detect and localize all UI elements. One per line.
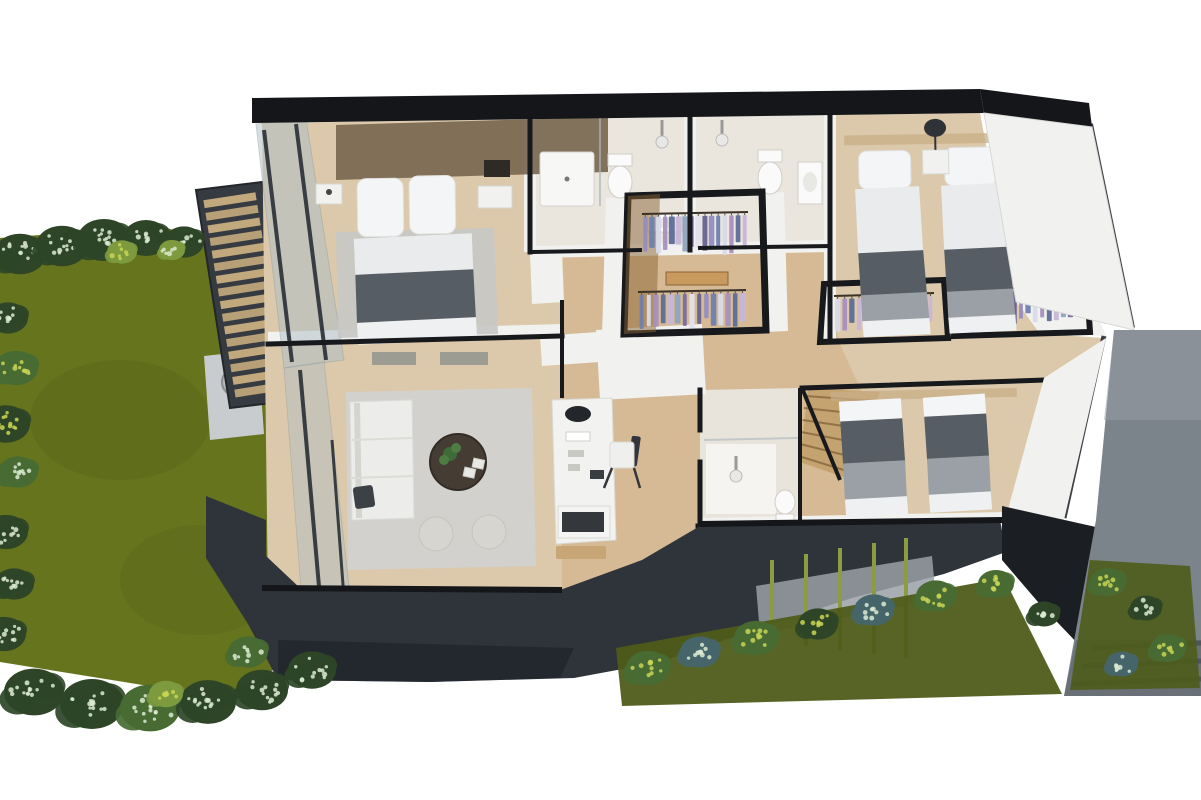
flower-cluster [647,673,651,677]
flower-cluster [1108,583,1113,588]
flower-cluster [146,238,150,242]
desk-item [568,450,584,457]
flower-cluster [140,698,145,703]
clothes-item [661,295,666,324]
clothes-item [683,294,687,326]
clothes-item [656,217,661,254]
clothes-item [736,215,741,242]
clothes-item [668,294,673,324]
flower-cluster [6,431,10,435]
clothes-item [725,293,730,326]
flower-cluster [995,581,1000,586]
shower-head [716,134,728,146]
flower-cluster [1098,583,1101,586]
pillow [357,178,404,237]
lawn-shade [30,360,210,480]
blanket [858,250,927,297]
bush-body [995,572,1015,588]
flower-cluster [144,233,147,236]
flower-cluster [20,581,23,584]
flower-cluster [750,638,755,643]
flower-cluster [1144,604,1149,609]
clothes-item [675,216,681,244]
flower-cluster [18,366,21,369]
flower-cluster [995,577,998,580]
flower-cluster [276,691,280,695]
bush-body [55,696,93,728]
flower-cluster [13,470,17,474]
flower-cluster [11,313,15,317]
flower-cluster [763,629,767,633]
bush-body [116,701,152,731]
flower-cluster [120,247,124,251]
flower-cluster [159,229,162,232]
flower-cluster [169,713,174,718]
pillow [944,147,997,186]
flower-cluster [700,643,704,647]
flower-cluster [826,614,829,617]
flower-cluster [20,469,24,473]
flower-cluster [1149,611,1153,615]
flower-cluster [143,720,146,723]
flower-cluster [325,665,328,668]
potted-plant [439,455,449,465]
bush-body [73,233,105,260]
flower-cluster [816,622,820,626]
flower-cluster [269,697,274,702]
clothes-item [842,299,847,331]
throw-pillow [353,485,376,510]
flower-cluster [154,710,158,714]
clothes-item [663,217,667,250]
bush-body [817,611,839,629]
flower-cluster [92,694,95,697]
flower-cluster [812,630,817,635]
flower-cluster [756,633,761,638]
flower-cluster [14,426,17,429]
flower-cluster [193,699,197,703]
flower-cluster [100,232,103,235]
flower-cluster [9,586,13,590]
flower-cluster [22,691,25,694]
flower-cluster [198,239,202,243]
flower-cluster [658,658,661,661]
flower-cluster [13,625,16,628]
flower-cluster [8,687,13,692]
toilet-tank [758,150,782,162]
flower-cluster [10,579,13,582]
flower-cluster [1162,643,1166,647]
flower-cluster [163,692,168,697]
sink-basin [803,172,817,192]
blanket [840,418,905,465]
flower-cluster [982,578,987,583]
clothes-item [857,298,861,330]
flower-cluster [12,366,17,371]
flower-cluster [142,712,146,716]
clothes-item [835,299,841,332]
flower-cluster [1115,587,1119,591]
flower-cluster [15,686,19,690]
flower-cluster [639,663,644,668]
flower-cluster [693,653,697,657]
clothes-item [682,216,687,251]
flower-cluster [25,680,30,685]
coaster [472,458,485,469]
blanket-fold [927,455,991,496]
pillow [858,150,911,189]
flower-cluster [1041,613,1046,618]
flower-cluster [62,245,65,248]
coaster [463,467,476,478]
flower-cluster [300,678,305,683]
flower-cluster [23,244,28,249]
bush-body [623,663,649,685]
flower-cluster [118,254,121,257]
closet-bench [666,272,728,285]
flower-cluster [294,665,297,668]
flower-cluster [134,710,137,713]
desk-item [568,464,580,471]
flower-cluster [863,610,868,615]
flower-cluster [39,679,43,683]
floorplan-render-stage [0,0,1201,800]
clothes-item [711,294,717,326]
tv-console [372,352,416,365]
duvet [855,186,923,255]
flower-cluster [1098,576,1103,581]
flower-cluster [1168,647,1173,652]
flower-cluster [153,717,156,720]
flower-cluster [312,671,316,675]
nightstand [922,150,948,174]
blanket [355,269,476,325]
clothes-item [669,216,675,244]
flower-cluster [757,628,762,633]
flower-cluster [763,643,767,647]
flower-cluster [260,688,265,693]
flower-cluster [1157,644,1162,649]
flower-cluster [60,237,63,240]
clothes-item [704,294,708,318]
flower-cluster [687,656,690,659]
flower-cluster [820,615,825,620]
blanket-fold [843,460,907,501]
flower-cluster [8,424,12,428]
flower-cluster [11,526,14,529]
flower-cluster [13,465,16,468]
flower-cluster [107,235,110,238]
flower-cluster [11,630,15,634]
flower-cluster [942,588,947,593]
flower-cluster [707,655,711,659]
flower-cluster [2,532,6,536]
desk-book [590,470,604,479]
flower-cluster [17,627,21,631]
wall [530,250,564,304]
slab-edge [262,588,562,590]
flower-cluster [90,699,95,704]
clothes-item [697,294,701,324]
flower-cluster [243,645,247,649]
flower-cluster [132,706,136,710]
clothes-item [675,294,681,323]
clothes-item [743,215,747,249]
nightstand [478,186,512,208]
flower-cluster [5,411,8,414]
flower-cluster [28,687,32,691]
flower-cluster [110,253,115,258]
flower-cluster [648,660,653,665]
clothes-item [709,216,715,249]
flower-cluster [15,418,19,422]
flower-cluster [89,713,93,717]
clothes-item [695,216,701,248]
flower-cluster [274,683,278,687]
flower-cluster [1162,652,1167,657]
single-bed [923,393,992,512]
flower-cluster [9,532,13,536]
flower-cluster [941,604,945,608]
desk-tray [566,432,590,441]
flower-cluster [262,692,265,695]
single-bed [839,398,908,517]
flower-cluster [659,669,662,672]
flower-cluster [246,653,251,658]
flower-cluster [27,372,30,375]
flower-cluster [870,607,874,611]
wall-line [534,250,640,252]
flower-cluster [745,629,750,634]
flower-cluster [273,688,277,692]
flower-cluster [144,694,147,697]
flower-cluster [170,248,174,252]
flower-cluster [2,248,5,251]
flower-cluster [58,251,61,254]
flower-cluster [174,695,178,699]
flower-cluster [217,699,220,702]
flower-cluster [881,602,886,607]
flower-cluster [4,628,8,632]
flower-cluster [118,243,121,246]
chair-seat [610,442,634,468]
foot-throw [948,315,1016,334]
flower-cluster [1050,613,1055,618]
flower-cluster [107,230,111,234]
flower-cluster [70,697,74,701]
flower-cluster [1115,666,1120,671]
flower-cluster [246,650,249,653]
bush-body [1087,578,1109,596]
flower-cluster [921,596,926,601]
flower-cluster [1134,607,1139,612]
flower-cluster [1120,655,1124,659]
flower-cluster [311,675,315,679]
flower-cluster [865,603,869,607]
flower-cluster [266,696,269,699]
flower-cluster [23,369,27,373]
flower-cluster [869,616,874,621]
flower-cluster [65,244,68,247]
clothes-item [718,293,723,325]
flower-cluster [17,462,21,466]
pouf [419,517,453,551]
flower-cluster [125,253,128,256]
flower-cluster [101,228,105,232]
clothes-item [716,216,720,247]
bush-body [232,684,263,710]
flower-cluster [1144,612,1148,616]
flower-cluster [863,615,868,620]
toilet [775,490,795,514]
flower-cluster [926,599,931,604]
flower-cluster [649,666,653,670]
flower-cluster [52,250,56,254]
flower-cluster [630,666,634,670]
floorplan-3d-scene [0,0,1201,800]
bush-body [284,664,313,688]
flower-cluster [30,693,34,697]
flower-cluster [1141,598,1146,603]
clothes-item [653,295,658,327]
flower-cluster [171,690,175,694]
bush-body [121,242,138,256]
clothes-item [702,216,707,251]
flower-cluster [201,692,205,696]
flower-cluster [158,696,161,699]
foot-throw [929,491,992,512]
flower-cluster [209,702,213,706]
flower-cluster [206,698,211,703]
flower-cluster [200,687,204,691]
flower-cluster [11,638,14,641]
flower-cluster [323,676,326,679]
flower-cluster [250,685,254,689]
flower-cluster [1,362,5,366]
flower-cluster [136,234,141,239]
flower-cluster [936,594,941,599]
flower-cluster [47,234,50,237]
flower-cluster [93,228,96,231]
pouf [472,515,506,549]
shower-drain [565,177,570,182]
flower-cluster [885,612,889,616]
flower-cluster [189,234,192,237]
flower-cluster [167,251,172,256]
flower-cluster [184,235,189,240]
flower-cluster [20,360,24,364]
flower-cluster [2,632,7,637]
flower-cluster [259,649,264,654]
flower-cluster [0,640,3,643]
flower-cluster [15,580,19,584]
clothes-item [640,295,644,329]
flower-cluster [1106,580,1110,584]
clothes-item [740,293,745,322]
shower-head [730,470,742,482]
flower-cluster [752,629,755,632]
flower-cluster [7,316,11,320]
clothes-item [643,217,647,252]
flower-cluster [1110,577,1115,582]
flower-cluster [0,425,5,430]
flower-cluster [99,707,102,710]
flower-cluster [15,475,19,479]
blanket [944,247,1013,294]
flower-cluster [1179,642,1184,647]
walkway-top [1104,330,1201,420]
flower-cluster [204,706,207,709]
flower-cluster [741,642,746,647]
flower-cluster [3,539,6,542]
toilet-tank [608,154,632,166]
flower-cluster [100,691,104,695]
flower-cluster [1149,606,1154,611]
flower-cluster [65,248,68,251]
clothes-item [689,294,694,328]
flower-cluster [135,230,138,233]
slab-edge [700,520,1002,524]
coffee-table [430,434,486,490]
clothes-item [647,295,651,327]
tv-console [440,352,488,365]
flower-cluster [703,647,707,651]
desk-decor [565,406,591,422]
sofa [350,400,414,520]
flower-cluster [187,697,190,700]
flower-cluster [26,692,30,696]
foot-throw [862,318,930,337]
flower-cluster [18,251,21,254]
flower-cluster [49,241,53,245]
cabinet-front [562,512,604,532]
flower-cluster [16,534,19,537]
flower-cluster [932,602,935,605]
wall-line [700,246,830,248]
wood-bench [556,546,606,559]
flower-cluster [97,238,101,242]
flower-cluster [4,415,8,419]
flower-cluster [800,620,805,625]
clothes-item [649,217,655,248]
flower-cluster [992,587,997,592]
flower-cluster [811,621,816,626]
foot-throw [845,496,908,517]
flower-cluster [700,653,705,658]
blanket [924,413,989,460]
flower-cluster [251,680,254,683]
flower-cluster [233,654,237,658]
flower-cluster [1036,612,1039,615]
flower-cluster [3,371,7,375]
flower-cluster [148,708,152,712]
flower-cluster [237,655,240,658]
flower-cluster [13,527,18,532]
flower-cluster [3,576,6,579]
flower-cluster [8,242,12,246]
flower-cluster [51,684,55,688]
pillow [409,175,456,234]
flower-cluster [11,306,14,309]
shower-head [656,136,668,148]
flower-cluster [102,707,106,711]
bush-body [795,619,819,639]
picture-frame [484,160,510,177]
bush-body [33,673,66,700]
clothes-item [733,293,738,326]
flower-cluster [198,701,201,704]
flower-cluster [91,706,95,710]
